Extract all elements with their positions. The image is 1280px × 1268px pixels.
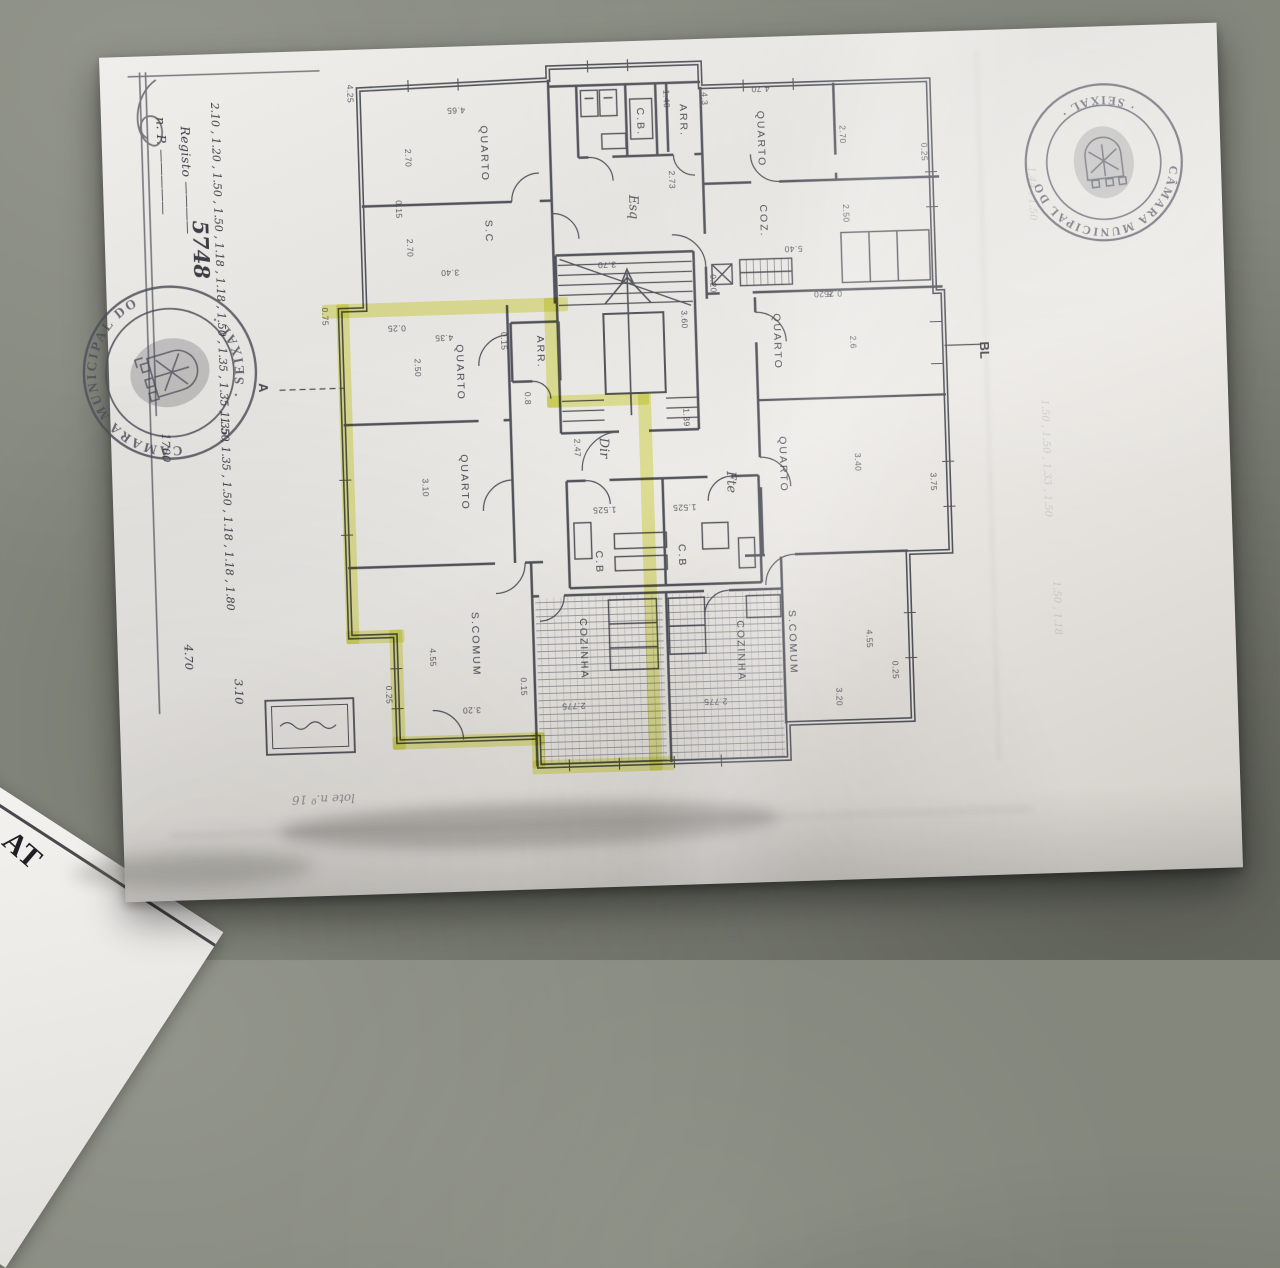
photo-of-floor-plan: { "scene":{"description":"photocopied ap…: [0, 0, 1280, 960]
sheet-content: CÂMARA MUNICIPAL DO · SEIXAL · CÂMARA MU…: [0, 0, 1280, 981]
balcony: [265, 698, 355, 755]
block-line: [944, 344, 981, 345]
balcony-handwritten-note: [280, 721, 336, 730]
section-line-a: [280, 388, 345, 390]
floor-plan-sheet: CÂMARA MUNICIPAL DO · SEIXAL · CÂMARA MU…: [99, 23, 1243, 903]
margin-rules: [127, 67, 339, 715]
